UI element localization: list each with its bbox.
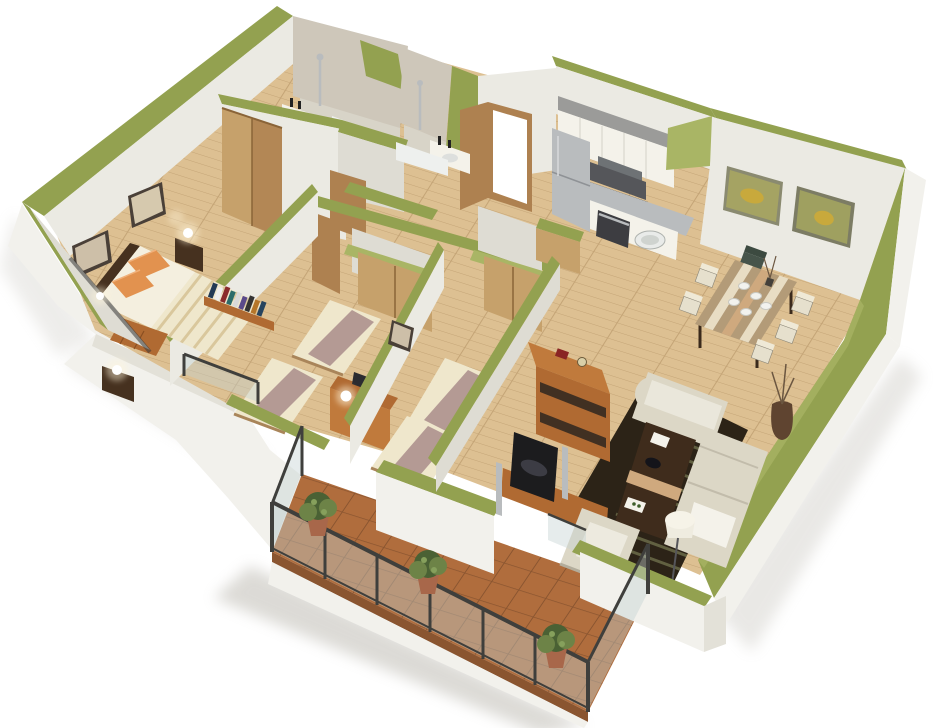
- shower-head: [317, 54, 324, 61]
- desk-lamp: [341, 391, 352, 402]
- shower-head: [417, 80, 423, 86]
- table-lamp: [183, 228, 193, 238]
- floor-plan-render: [0, 0, 940, 728]
- clock-ornament: [578, 358, 587, 367]
- wall-sconce: [96, 292, 104, 300]
- apartment-3d-scene: [0, 0, 940, 728]
- front-door: [493, 110, 527, 204]
- table-lamp: [112, 365, 122, 375]
- speaker-column: [496, 462, 502, 516]
- speaker-column: [562, 446, 568, 500]
